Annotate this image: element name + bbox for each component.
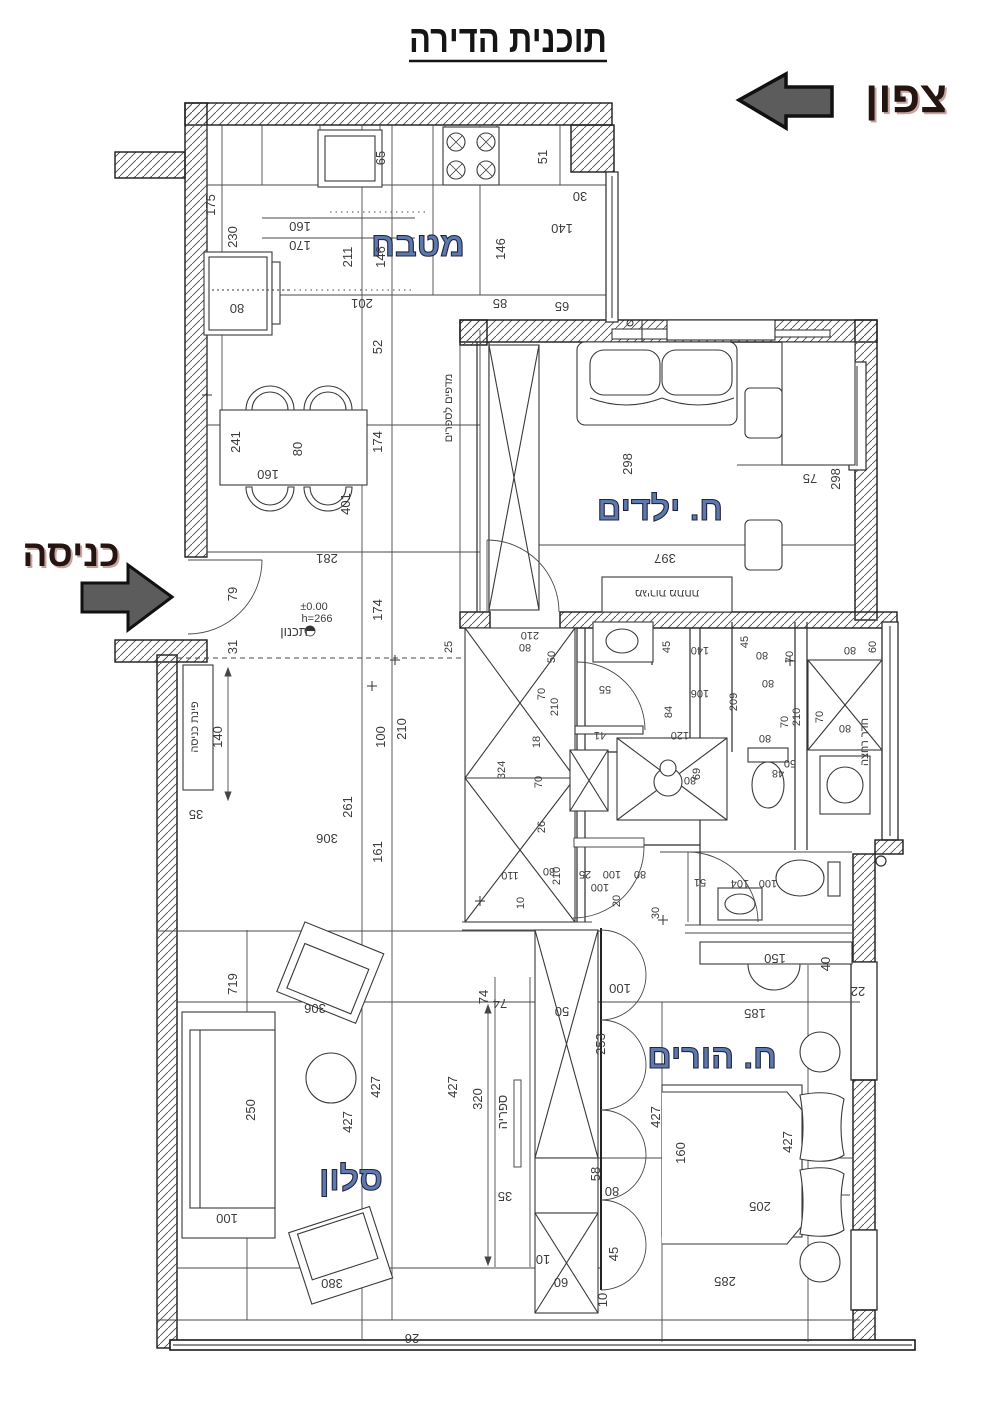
svg-text:18: 18 <box>531 736 543 748</box>
svg-text:50: 50 <box>546 651 558 663</box>
svg-text:150: 150 <box>764 951 786 966</box>
svg-text:48: 48 <box>772 767 784 779</box>
svg-text:74: 74 <box>476 990 491 1004</box>
svg-text:35: 35 <box>189 807 203 822</box>
svg-text:210: 210 <box>394 718 409 740</box>
svg-text:80: 80 <box>762 677 774 689</box>
svg-text:25: 25 <box>579 868 591 880</box>
svg-text:26: 26 <box>405 1331 419 1346</box>
svg-text:146: 146 <box>373 246 388 268</box>
svg-text:45: 45 <box>661 641 673 653</box>
svg-text:31: 31 <box>225 640 240 654</box>
svg-text:חדר רחצה: חדר רחצה <box>859 718 871 766</box>
svg-text:79: 79 <box>225 587 240 601</box>
svg-text:161: 161 <box>370 841 385 863</box>
svg-text:210: 210 <box>521 629 539 641</box>
svg-text:20: 20 <box>611 895 623 907</box>
svg-text:45: 45 <box>606 1247 621 1261</box>
svg-text:110: 110 <box>501 869 519 881</box>
svg-text:106: 106 <box>691 687 709 699</box>
svg-text:210: 210 <box>551 867 563 885</box>
svg-text:22: 22 <box>851 984 865 999</box>
svg-text:30: 30 <box>573 189 587 204</box>
svg-text:80: 80 <box>605 1184 619 1199</box>
svg-text:298: 298 <box>620 453 635 475</box>
svg-text:55: 55 <box>599 683 611 695</box>
svg-text:120: 120 <box>671 729 689 741</box>
svg-text:140: 140 <box>210 726 225 748</box>
svg-text:170: 170 <box>289 238 311 253</box>
svg-text:51: 51 <box>535 150 550 164</box>
svg-text:324: 324 <box>496 761 508 779</box>
svg-text:380: 380 <box>321 1276 343 1291</box>
svg-text:397: 397 <box>654 551 676 566</box>
svg-text:160: 160 <box>673 1142 688 1164</box>
svg-text:69: 69 <box>691 768 703 780</box>
svg-text:70: 70 <box>779 716 791 728</box>
svg-text:427: 427 <box>780 1131 795 1153</box>
svg-text:צפון: צפון <box>865 73 947 122</box>
svg-text:174: 174 <box>370 431 385 453</box>
svg-text:146: 146 <box>493 238 508 260</box>
svg-text:320: 320 <box>470 1088 485 1110</box>
svg-text:230: 230 <box>225 226 240 248</box>
svg-text:26: 26 <box>536 821 548 833</box>
svg-text:201: 201 <box>351 296 373 311</box>
svg-text:80: 80 <box>230 301 244 316</box>
svg-text:פינת כניסה: פינת כניסה <box>189 701 201 753</box>
svg-text:210: 210 <box>791 708 803 726</box>
svg-text:719: 719 <box>225 973 240 995</box>
svg-text:160: 160 <box>257 467 279 482</box>
svg-text:10: 10 <box>515 897 527 909</box>
svg-text:70: 70 <box>536 688 548 700</box>
svg-text:281: 281 <box>316 551 338 566</box>
svg-text:ח. ילדים: ח. ילדים <box>597 490 723 528</box>
svg-text:427: 427 <box>340 1111 355 1133</box>
svg-text:100: 100 <box>603 868 621 880</box>
svg-text:80: 80 <box>759 732 771 744</box>
svg-text:65: 65 <box>555 299 569 314</box>
svg-text:35: 35 <box>498 1189 512 1204</box>
svg-text:41: 41 <box>594 729 606 741</box>
svg-text:ח. הורים: ח. הורים <box>647 1038 777 1076</box>
svg-text:104: 104 <box>731 877 749 889</box>
svg-text:60: 60 <box>867 641 879 653</box>
svg-text:100: 100 <box>216 1211 238 1226</box>
svg-text:40: 40 <box>818 957 833 971</box>
svg-text:80: 80 <box>519 641 531 653</box>
svg-text:100: 100 <box>759 877 777 889</box>
svg-text:80: 80 <box>634 868 646 880</box>
svg-text:174: 174 <box>370 599 385 621</box>
svg-text:80: 80 <box>844 644 856 656</box>
svg-text:52: 52 <box>370 340 385 354</box>
svg-text:175: 175 <box>203 194 218 216</box>
svg-text:תוכנית הדירה: תוכנית הדירה <box>409 19 607 61</box>
svg-text:427: 427 <box>445 1076 460 1098</box>
svg-text:80: 80 <box>290 442 305 456</box>
svg-text:85: 85 <box>493 296 507 311</box>
svg-text:70: 70 <box>784 651 796 663</box>
svg-text:10: 10 <box>536 1252 550 1267</box>
svg-text:427: 427 <box>648 1106 663 1128</box>
svg-text:285: 285 <box>714 1274 736 1289</box>
svg-text:298: 298 <box>828 468 843 490</box>
svg-text:51: 51 <box>694 876 706 888</box>
svg-text:427: 427 <box>368 1076 383 1098</box>
svg-text:100: 100 <box>373 726 388 748</box>
svg-text:209: 209 <box>728 693 740 711</box>
svg-text:25: 25 <box>443 641 455 653</box>
svg-text:±0.00: ±0.00 <box>300 601 327 613</box>
svg-text:74: 74 <box>493 996 507 1011</box>
svg-text:45: 45 <box>739 636 751 648</box>
svg-text:185: 185 <box>744 1006 766 1021</box>
svg-text:מגירות מתחת: מגירות מתחת <box>635 587 699 599</box>
svg-text:70: 70 <box>533 776 545 788</box>
svg-text:401: 401 <box>338 493 353 515</box>
svg-text:306: 306 <box>304 1001 326 1016</box>
svg-text:140: 140 <box>691 644 709 656</box>
svg-text:160: 160 <box>289 219 311 234</box>
svg-text:50: 50 <box>784 757 796 769</box>
svg-text:10: 10 <box>595 1293 610 1307</box>
svg-text:100: 100 <box>591 881 609 893</box>
svg-text:306: 306 <box>316 831 338 846</box>
svg-text:מדפים לספרים: מדפים לספרים <box>442 374 455 443</box>
svg-text:80: 80 <box>839 722 851 734</box>
svg-text:205: 205 <box>749 1199 771 1214</box>
svg-text:סלון: סלון <box>319 1160 383 1198</box>
svg-text:211: 211 <box>340 247 355 268</box>
svg-text:253: 253 <box>593 1033 608 1055</box>
svg-text:261: 261 <box>340 796 355 818</box>
svg-text:75: 75 <box>803 471 817 486</box>
svg-text:70: 70 <box>814 711 826 723</box>
svg-text:80: 80 <box>756 649 768 661</box>
svg-text:ספריה: ספריה <box>495 1095 510 1130</box>
svg-text:210: 210 <box>549 698 561 716</box>
svg-text:תכנון: תכנון <box>280 624 308 639</box>
svg-text:100: 100 <box>609 981 631 996</box>
svg-text:65: 65 <box>373 151 388 165</box>
svg-text:30: 30 <box>650 907 662 919</box>
svg-text:60: 60 <box>554 1275 568 1290</box>
svg-text:250: 250 <box>243 1099 258 1121</box>
svg-text:241: 241 <box>228 431 243 453</box>
svg-text:כניסה: כניסה <box>22 533 119 574</box>
svg-text:84: 84 <box>663 706 675 718</box>
svg-text:50: 50 <box>555 1004 569 1019</box>
svg-text:58: 58 <box>588 1167 603 1181</box>
svg-text:140: 140 <box>551 221 573 236</box>
